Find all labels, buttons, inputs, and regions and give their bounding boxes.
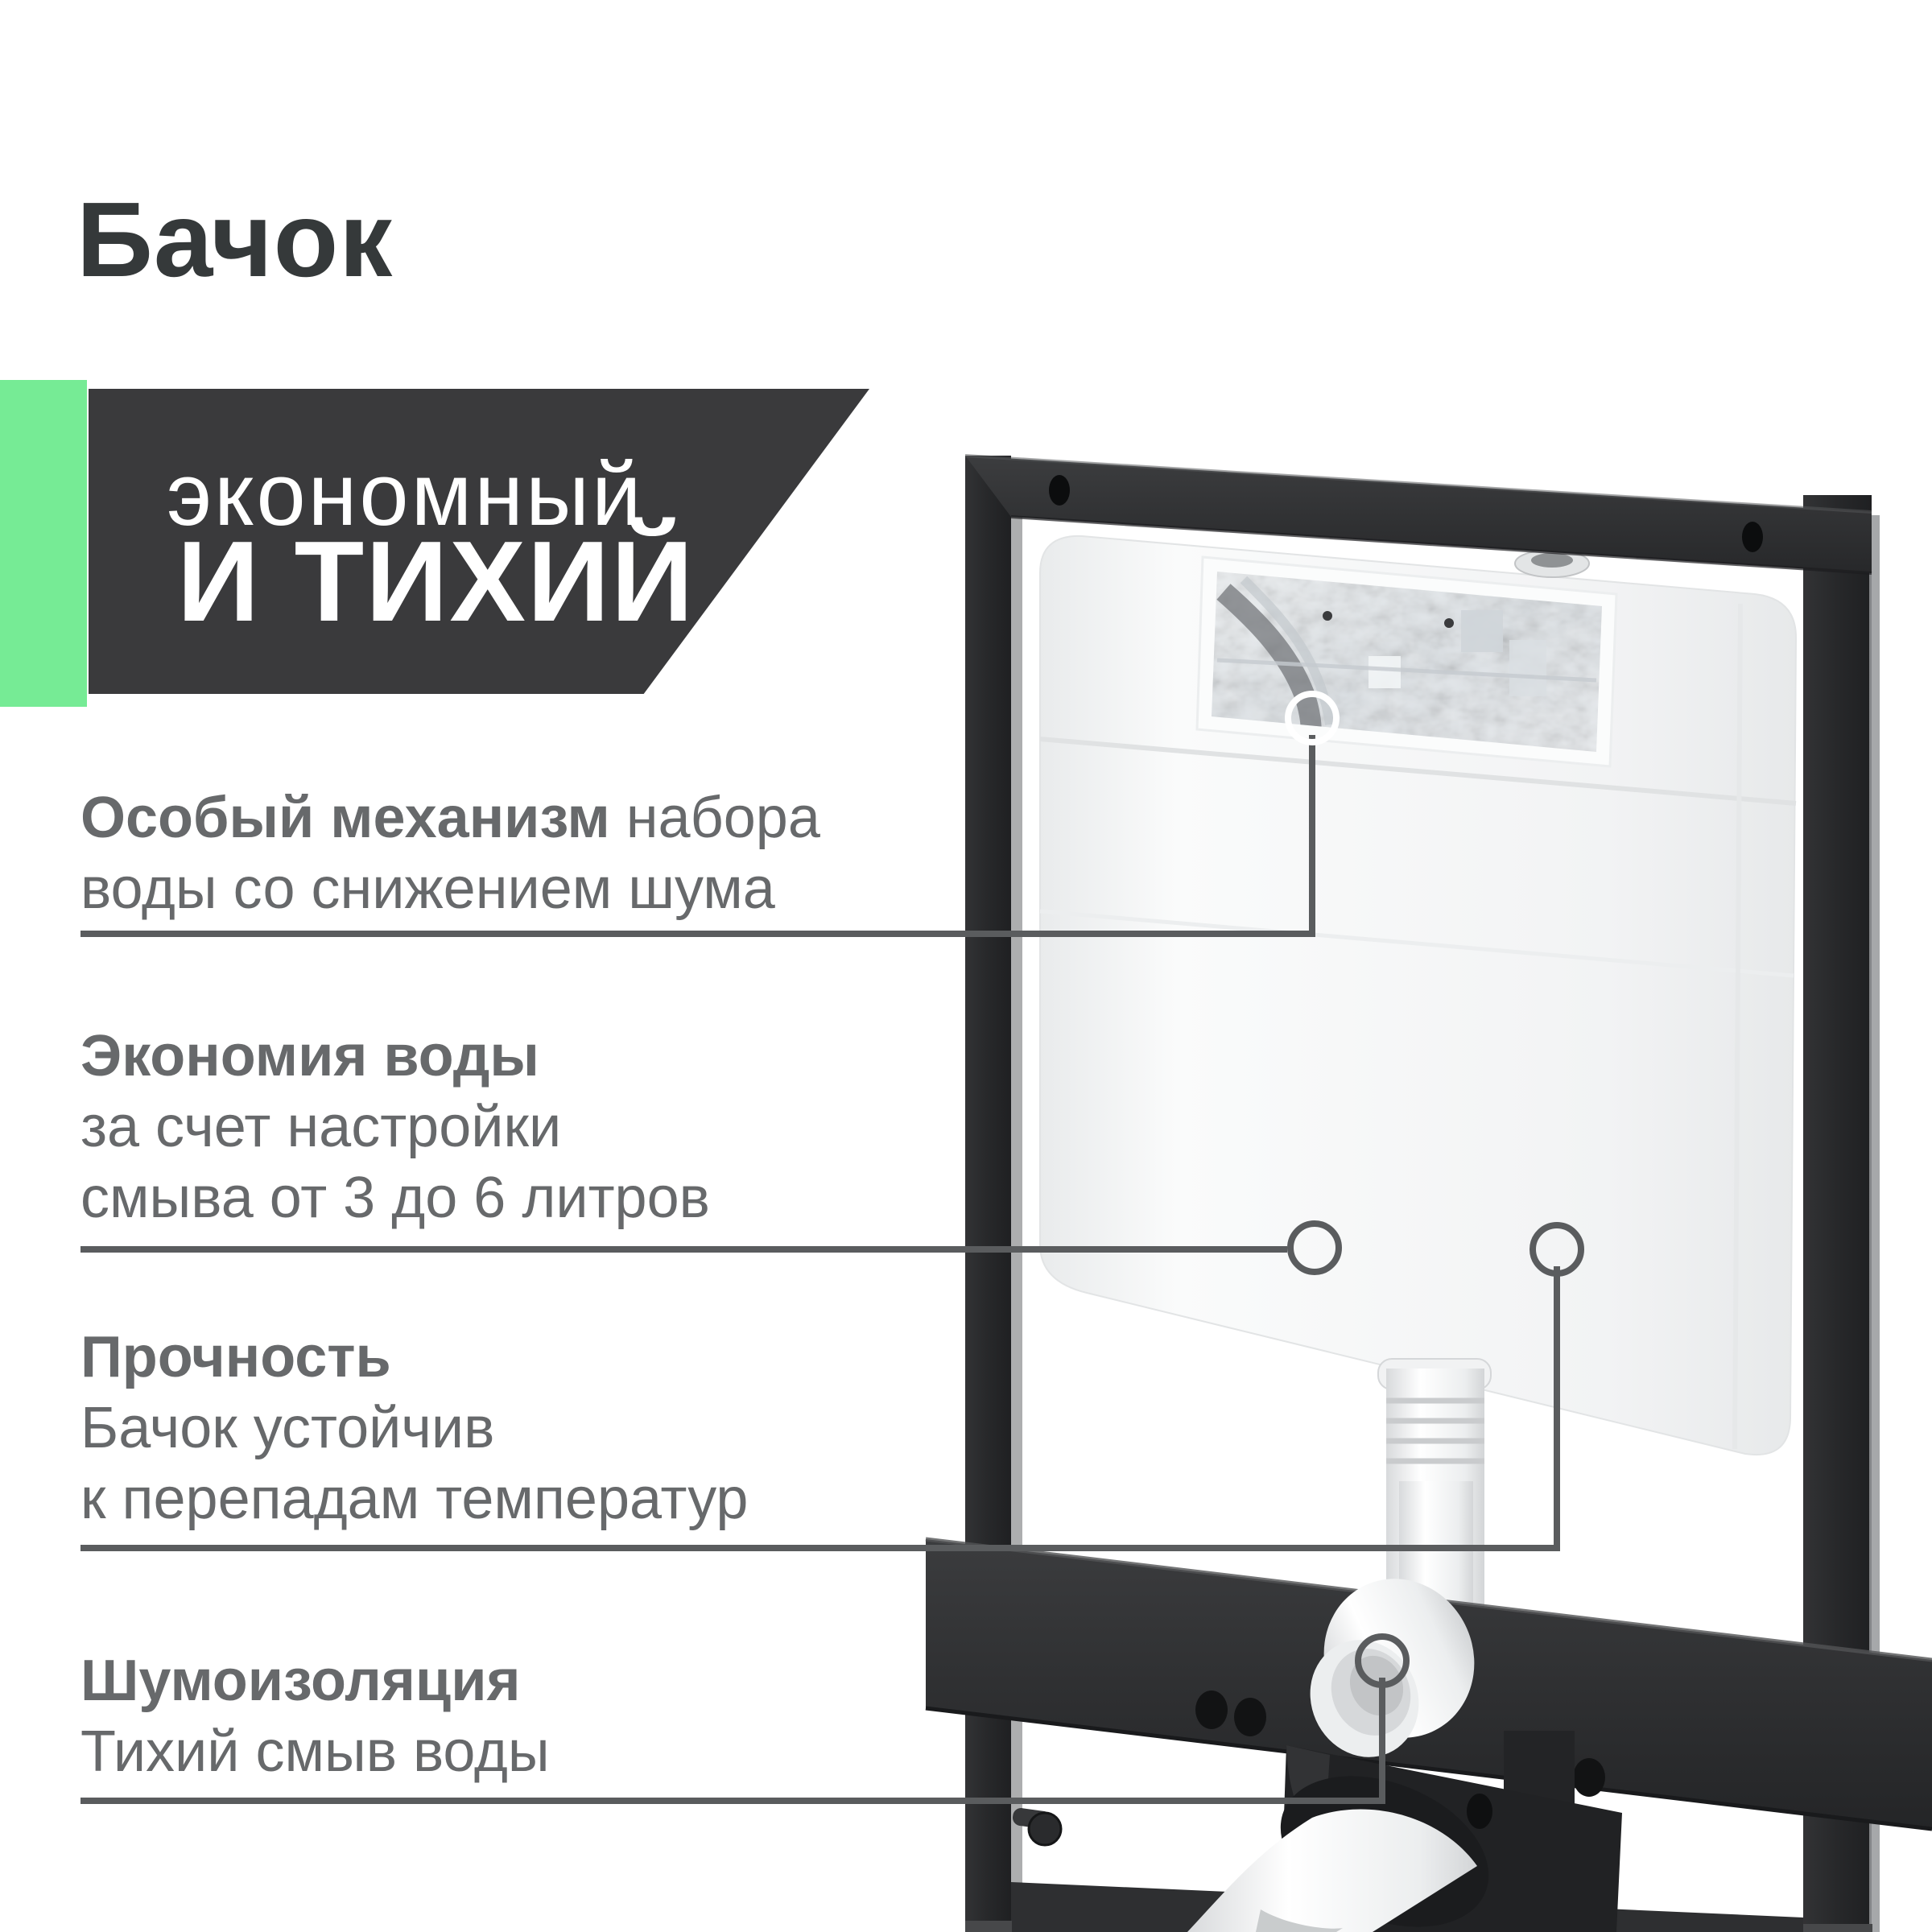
feature-special-mechanism: Особый механизм набора воды со снижением…	[80, 782, 820, 924]
feature-sound-insulation: Шумоизоляция Тихий смыв воды	[80, 1645, 550, 1787]
callout-circle-mechanism	[1285, 691, 1340, 745]
feature-water-saving: Экономия воды за счет настройки смыва от…	[80, 1021, 710, 1233]
callout-line-mechanism	[80, 931, 1315, 937]
mounting-hole	[1742, 522, 1763, 552]
product-infographic: Бачок экономный И ТИХИЙ Особый механизм …	[0, 0, 1932, 1932]
callout-circle-sound	[1355, 1633, 1410, 1688]
callout-vline-durability	[1554, 1266, 1560, 1551]
badge-text-line2: И ТИХИЙ	[177, 525, 695, 639]
mounting-hole	[1049, 475, 1070, 506]
inspection-window	[1197, 557, 1616, 766]
callout-circle-durability	[1529, 1222, 1584, 1277]
frame-foot	[965, 1921, 1012, 1932]
badge-accent-bar	[0, 380, 87, 707]
callout-vline-mechanism	[1309, 735, 1315, 937]
callout-line-durability	[80, 1545, 1560, 1551]
callout-line-water-saving	[80, 1246, 1287, 1253]
feature-durability: Прочность Бачок устойчив к перепадам тем…	[80, 1322, 748, 1534]
callout-vline-sound	[1379, 1678, 1385, 1804]
callout-circle-water-saving	[1287, 1220, 1342, 1275]
feature-lead: Шумоизоляция	[80, 1649, 520, 1713]
feature-lead: Экономия воды	[80, 1024, 539, 1088]
page-title: Бачок	[76, 187, 393, 293]
callout-line-sound	[80, 1798, 1385, 1804]
feature-lead: Прочность	[80, 1325, 391, 1389]
frame-foot	[1803, 1924, 1872, 1932]
feature-lead: Особый механизм	[80, 786, 610, 850]
